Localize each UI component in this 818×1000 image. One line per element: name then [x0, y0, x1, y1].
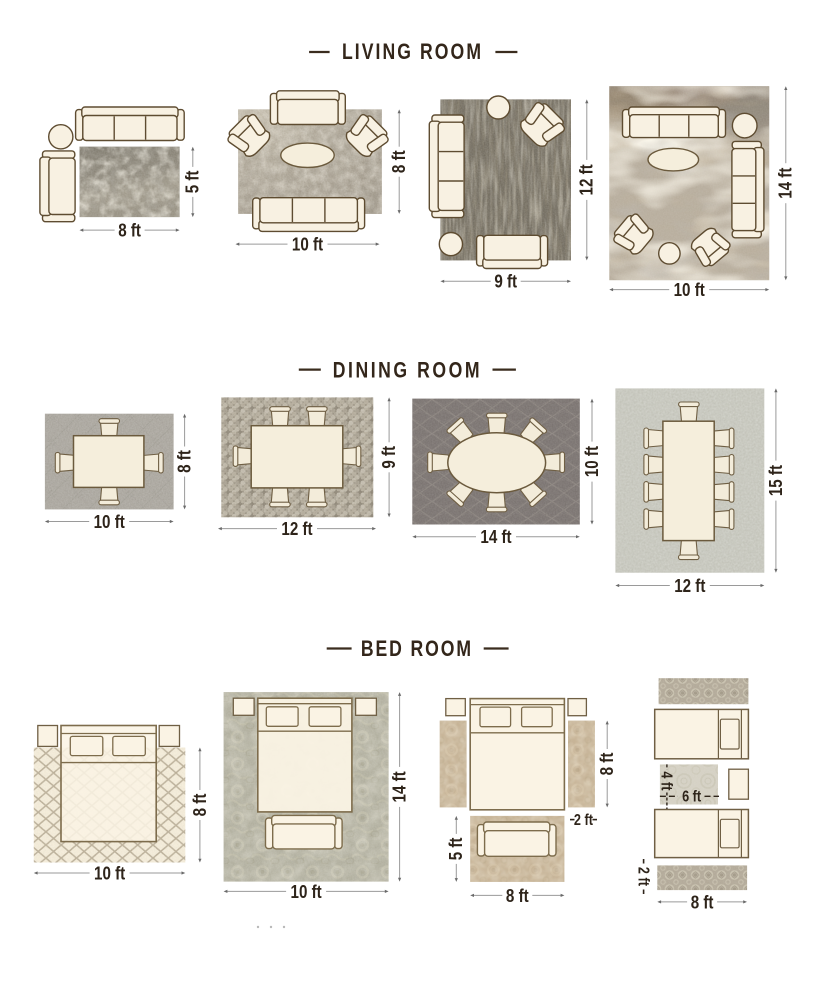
svg-text:10 ft: 10 ft: [291, 881, 323, 902]
svg-text:10 ft: 10 ft: [674, 280, 706, 301]
svg-text:BED ROOM: BED ROOM: [361, 637, 473, 661]
svg-text:6 ft: 6 ft: [682, 788, 701, 805]
svg-text:10 ft: 10 ft: [292, 234, 324, 255]
svg-text:14 ft: 14 ft: [389, 771, 410, 803]
svg-text:14 ft: 14 ft: [480, 527, 512, 548]
svg-text:8 ft: 8 ft: [118, 220, 141, 241]
svg-text:15 ft: 15 ft: [765, 465, 786, 497]
svg-text:8 ft: 8 ft: [597, 752, 618, 775]
svg-text:10 ft: 10 ft: [581, 446, 602, 478]
svg-text:10 ft: 10 ft: [94, 863, 126, 884]
svg-text:8 ft: 8 ft: [189, 793, 210, 816]
svg-text:2 ft: 2 ft: [634, 867, 651, 886]
svg-text:4 ft: 4 ft: [657, 771, 674, 790]
svg-text:DINING ROOM: DINING ROOM: [333, 359, 482, 383]
svg-text:8 ft: 8 ft: [691, 892, 714, 913]
svg-text:9 ft: 9 ft: [494, 271, 517, 292]
svg-text:12 ft: 12 ft: [674, 575, 706, 596]
svg-text:8 ft: 8 ft: [389, 150, 410, 173]
svg-text:12 ft: 12 ft: [281, 519, 313, 540]
svg-text:14 ft: 14 ft: [775, 167, 796, 199]
svg-text:12 ft: 12 ft: [576, 164, 597, 196]
svg-text:5 ft: 5 ft: [446, 837, 467, 860]
svg-text:2 ft: 2 ft: [574, 812, 593, 829]
svg-text:5 ft: 5 ft: [182, 170, 203, 193]
svg-text:10 ft: 10 ft: [94, 511, 126, 532]
svg-text:9 ft: 9 ft: [379, 446, 400, 469]
svg-text:8 ft: 8 ft: [506, 885, 529, 906]
svg-text:LIVING ROOM: LIVING ROOM: [342, 40, 483, 64]
svg-text:8 ft: 8 ft: [174, 450, 195, 473]
